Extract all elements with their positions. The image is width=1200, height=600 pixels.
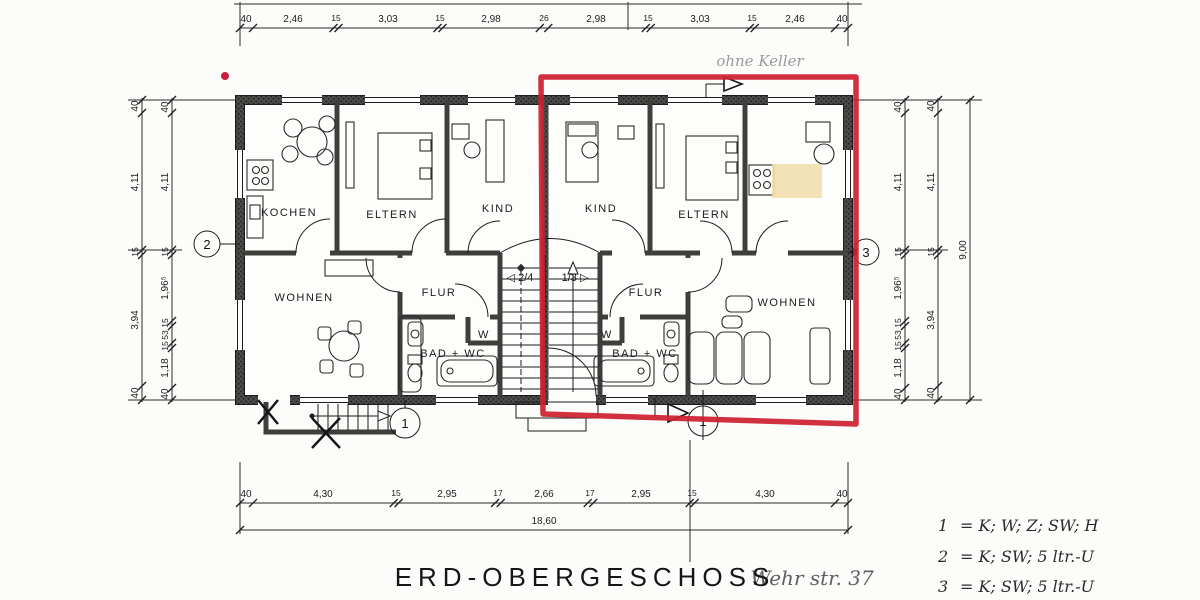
dim-label: 1,18 xyxy=(160,358,171,378)
unit-marker-3: 3 xyxy=(862,245,869,260)
dim-label: 15 xyxy=(130,247,140,257)
dim-label: 4,30 xyxy=(755,489,775,500)
page-title: ERD-OBERGESCHOSS xyxy=(395,562,776,592)
dim-label: 1,96⁵ xyxy=(160,276,171,300)
dim-total-label: 9,00 xyxy=(958,240,969,260)
room-label-kind-left: KIND xyxy=(482,203,514,215)
room-label-closet-left: W xyxy=(478,329,490,341)
dim-label: 17 xyxy=(585,488,595,498)
room-label-kind-right: KIND xyxy=(585,203,617,215)
dim-label: 15 xyxy=(391,488,401,498)
dim-label: 15 xyxy=(331,13,341,23)
room-label-wohnen-right: WOHNEN xyxy=(757,297,816,309)
dim-label: 40 xyxy=(893,388,904,400)
dim-label: 2,95 xyxy=(631,489,651,500)
room-label-flur-right: FLUR xyxy=(629,287,664,299)
dim-label: 17 xyxy=(493,488,503,498)
dim-label: 3,03 xyxy=(690,14,710,25)
unit-marker-2: 2 xyxy=(203,237,210,252)
dim-label: 2,95 xyxy=(437,489,457,500)
dim-label: 3,03 xyxy=(378,14,398,25)
legend-value-3: = K; SW; 5 ltr.-U xyxy=(960,577,1095,596)
dim-label: 4,11 xyxy=(926,172,937,191)
dim-label: 40 xyxy=(160,101,171,113)
room-label-eltern-left: ELTERN xyxy=(366,209,418,221)
dim-label: 1,96⁵ xyxy=(893,276,904,300)
dim-label: 4,11 xyxy=(160,172,171,191)
dim-label: 3,94 xyxy=(130,310,141,330)
dim-label: 40 xyxy=(240,14,252,25)
dim-label: 4,11 xyxy=(893,172,904,191)
dim-label: 53 xyxy=(160,330,170,340)
dim-label: 40 xyxy=(893,101,904,113)
red-dot-mark xyxy=(221,72,229,80)
room-label-closet-right: W xyxy=(601,329,613,341)
dim-label: 40 xyxy=(240,489,252,500)
room-label-bad-right: BAD + WC xyxy=(612,348,677,360)
dim-label: 15 xyxy=(926,247,936,257)
room-label-flur-left: FLUR xyxy=(422,287,457,299)
dim-label: 15 xyxy=(160,318,170,328)
room-label-eltern-right: ELTERN xyxy=(678,209,730,221)
dim-label: 40 xyxy=(926,100,937,112)
legend-key-1: 1 xyxy=(938,516,948,535)
legend-value-2: = K; SW; 5 ltr.-U xyxy=(960,547,1095,566)
dim-label: 26 xyxy=(539,13,549,23)
dim-label: 40 xyxy=(836,489,848,500)
room-label-wohnen-left: WOHNEN xyxy=(274,292,333,304)
dim-label: 1,18 xyxy=(893,358,904,378)
stair-flight-marker-right: 1/3 ▷ xyxy=(562,272,589,284)
dim-label: 40 xyxy=(926,387,937,399)
dim-label: 2,46 xyxy=(785,14,805,25)
dim-label: 4,30 xyxy=(313,489,333,500)
room-label-kochen-left: KOCHEN xyxy=(261,207,317,219)
dim-label: 40 xyxy=(130,100,141,112)
dim-label: 40 xyxy=(160,388,171,400)
dim-label: 40 xyxy=(836,14,848,25)
dim-label: 15 xyxy=(160,341,170,351)
dim-label: 15 xyxy=(893,318,903,328)
dim-label: 2,66 xyxy=(534,489,554,500)
cellar-note: ohne Keller xyxy=(716,52,804,70)
unit-marker-1-left: 1 xyxy=(401,416,408,431)
room-label-bad-left: BAD + WC xyxy=(420,348,485,360)
legend-key-2: 2 xyxy=(937,547,948,566)
dim-label: 2,98 xyxy=(481,14,501,25)
dim-label: 53 xyxy=(893,330,903,340)
dim-label: 2,98 xyxy=(586,14,606,25)
floorplan-svg: 40 2,46 15 3,03 15 2,98 26 2,98 15 3,03 … xyxy=(0,0,1200,600)
legend-key-3: 3 xyxy=(938,577,948,596)
beige-marker-highlight xyxy=(772,164,822,198)
floor-plan-page: 40 2,46 15 3,03 15 2,98 26 2,98 15 3,03 … xyxy=(0,0,1200,600)
dim-total-label: 18,60 xyxy=(531,516,556,527)
legend-value-1: = K; W; Z; SW; H xyxy=(960,516,1100,535)
dim-label: 15 xyxy=(747,13,757,23)
dim-label: 15 xyxy=(160,247,170,257)
dim-label: 15 xyxy=(893,247,903,257)
dim-label: 15 xyxy=(687,488,697,498)
dim-label: 15 xyxy=(893,341,903,351)
dim-label: 15 xyxy=(435,13,445,23)
dim-label: 4,11 xyxy=(130,172,141,191)
stair-flight-marker-left: ◁ 2/4 xyxy=(507,272,534,284)
dim-label: 40 xyxy=(130,387,141,399)
dim-label: 2,46 xyxy=(283,14,303,25)
legend: 1 = K; W; Z; SW; H 2 = K; SW; 5 ltr.-U 3… xyxy=(937,516,1100,596)
dim-label: 3,94 xyxy=(926,310,937,330)
dim-label: 15 xyxy=(643,13,653,23)
